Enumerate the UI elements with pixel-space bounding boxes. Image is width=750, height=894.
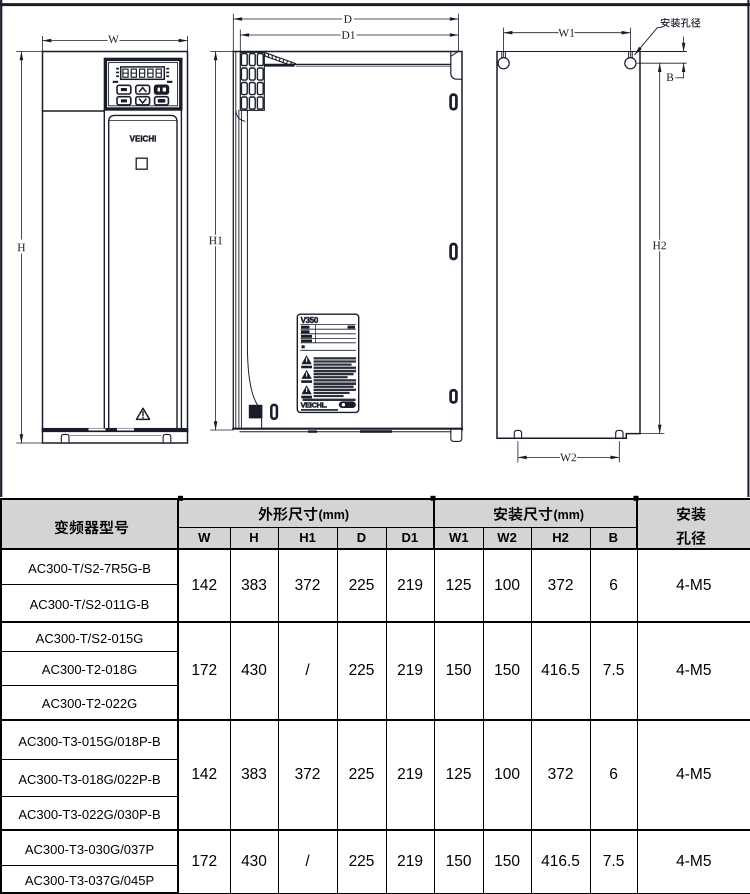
- svg-text:V350: V350: [301, 316, 319, 325]
- svg-text:VEICHI..: VEICHI..: [301, 401, 328, 410]
- svg-text:VEICHI: VEICHI: [130, 135, 157, 144]
